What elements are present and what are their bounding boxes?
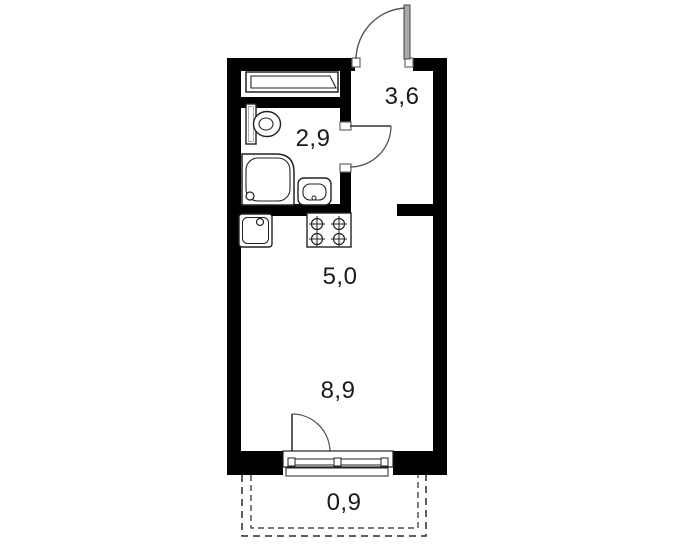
bathroom-door-jamb-top <box>340 122 351 130</box>
wall-left <box>227 58 241 475</box>
kitchen-sink-faucet <box>257 219 264 226</box>
toilet-bowl-inner <box>259 118 273 130</box>
washbasin <box>298 178 331 205</box>
wall-hallway-stub <box>397 204 433 216</box>
balcony-area-label: 0,9 <box>327 489 362 517</box>
shower-tray <box>242 154 294 205</box>
washbasin-drain <box>312 196 316 200</box>
bathroom-door-jamb-bottom <box>340 164 351 172</box>
bathroom-area-label: 2,9 <box>296 125 331 153</box>
wall-bottom-right <box>393 451 447 475</box>
window-unit <box>283 451 393 476</box>
kitchen-sink-inner <box>243 218 269 244</box>
kitchen-sink <box>239 214 272 247</box>
balcony-door <box>292 414 330 452</box>
entrance-door <box>352 5 413 67</box>
wall-top-left <box>227 58 355 71</box>
hallway-area-label: 3,6 <box>385 83 420 111</box>
balcony-door-swing-arc <box>292 414 330 452</box>
entrance-door-leaf <box>404 5 410 59</box>
floor-plan: 2,9 3,6 5,0 8,9 0,9 <box>0 0 685 550</box>
entrance-door-jamb-left <box>352 58 360 67</box>
living-zone-area-label: 8,9 <box>321 377 356 405</box>
window-sill <box>286 468 388 476</box>
stove <box>307 213 351 247</box>
wall-right <box>433 58 447 475</box>
shower-drain <box>246 192 254 200</box>
window-post-left <box>288 458 295 466</box>
window-post-right <box>381 458 388 466</box>
wardrobe-outline <box>246 72 338 92</box>
wall-bottom-left <box>227 451 283 475</box>
kitchen-zone-area-label: 5,0 <box>323 263 358 291</box>
bathroom-door <box>340 122 391 172</box>
wall-bathroom-right-upper <box>340 71 351 122</box>
wall-bathroom-top <box>241 97 351 108</box>
entrance-door-swing-arc <box>356 8 405 59</box>
bathroom-door-swing-arc <box>350 126 391 167</box>
toilet-tank-inner <box>249 107 254 142</box>
wardrobe <box>246 72 338 92</box>
toilet <box>246 104 281 144</box>
window-post-center <box>334 458 341 466</box>
